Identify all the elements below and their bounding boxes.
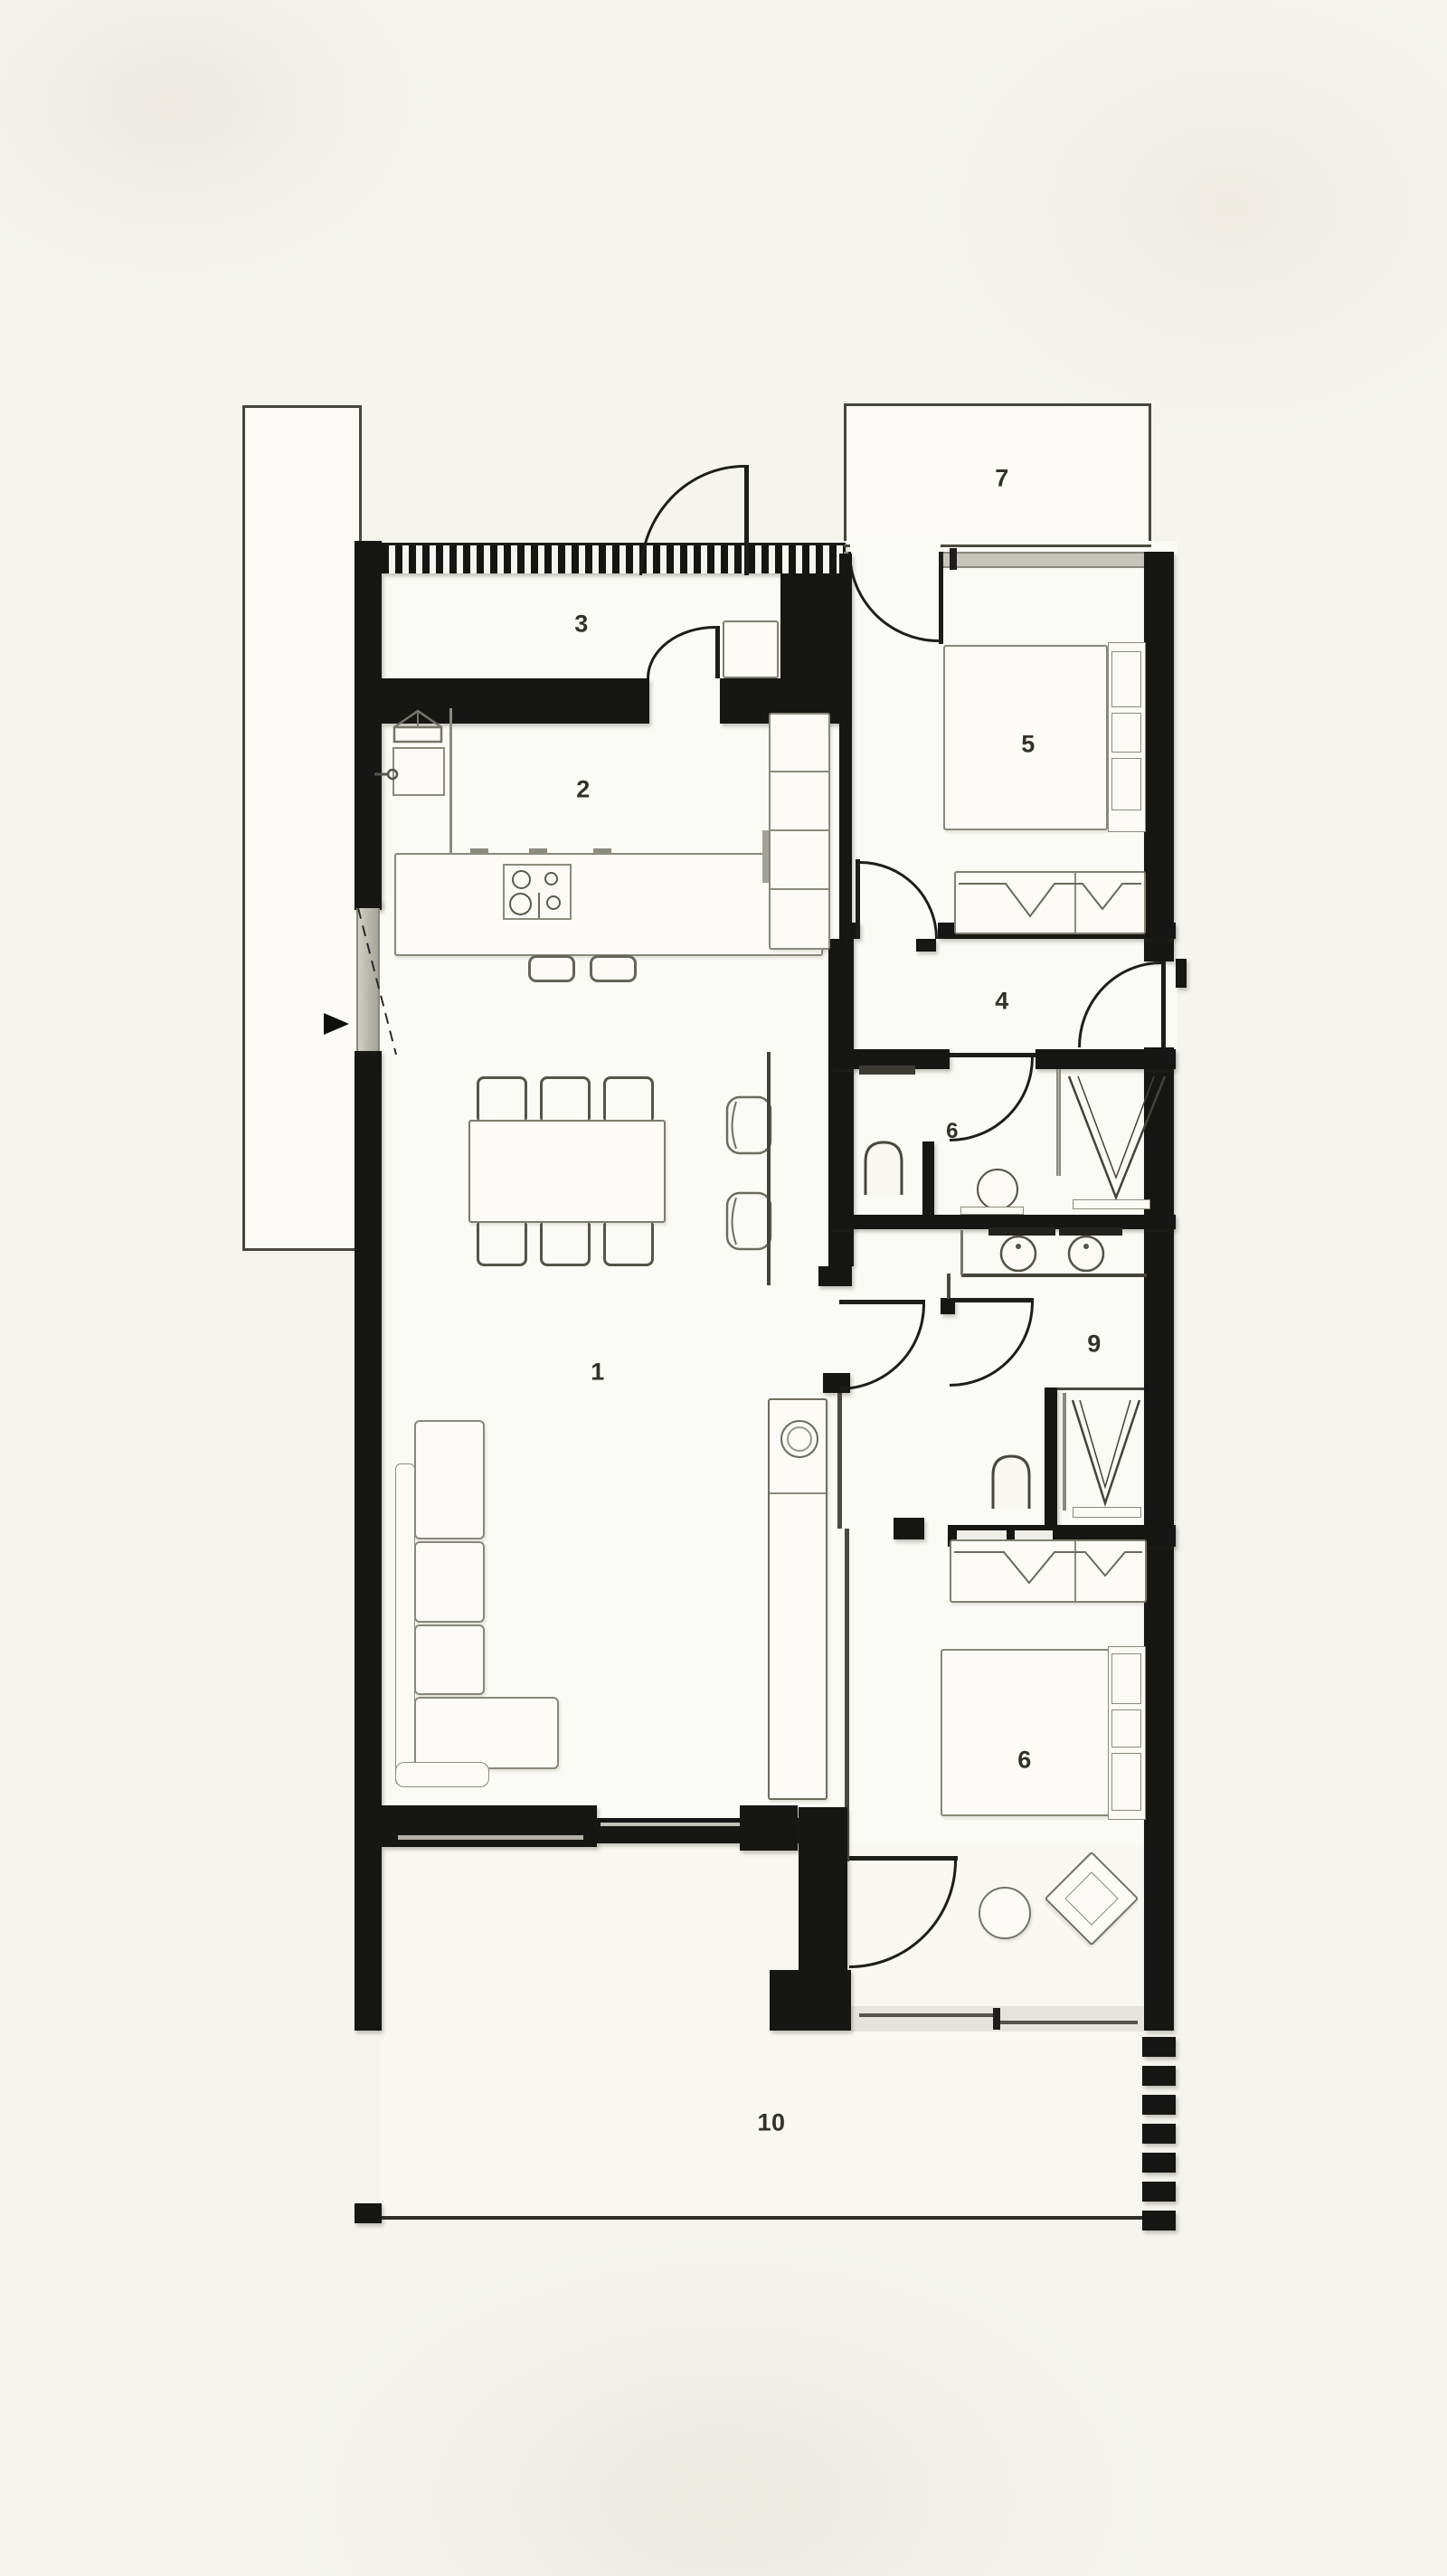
dining-chair [477,1076,527,1120]
shower-glass-door [1063,1393,1066,1511]
wall-bath-top [1036,1049,1176,1069]
washbasin-icon [977,1169,1018,1210]
dining-chair [540,1076,591,1120]
window-mullion [993,2008,1000,2030]
pillow [1111,713,1141,753]
terrace-fence-dash [1142,2153,1176,2173]
tall-cabinet-column [769,713,830,950]
room-label-entry: 3 [574,611,589,639]
entrance-door-leaf [1161,961,1166,1047]
island-handle [593,848,611,855]
faucet-icon [374,765,400,783]
room-label-balcony: 7 [995,465,1009,493]
entry-arrow-icon [322,1011,351,1037]
wall-corridor-thin [837,1393,842,1529]
dish-rack-icon [391,707,445,745]
front-door-leaf [744,465,749,575]
laundry-unit [768,1398,828,1800]
dining-chair [477,1223,527,1266]
door-stop [916,939,936,952]
entry-closet [723,620,779,678]
wall-left-main [355,1062,382,2031]
sink-icon [998,1233,1039,1274]
balcony-left [242,405,362,1251]
dining-chair [540,1223,591,1266]
bath-partition [1045,1387,1057,1539]
vanity-counter [961,1274,1147,1277]
cooktop-divider [538,893,540,918]
terrace-floor [380,1845,1147,2220]
wall-bedroom-left [839,554,852,923]
sofa-seat [414,1541,485,1623]
island-handle [529,848,547,855]
cabinet-divider [771,771,828,772]
room-label-terrace: 10 [757,2109,785,2137]
sink-icon [1065,1233,1107,1274]
pillow [1111,758,1141,810]
burner-icon [544,872,558,885]
island-handle [470,848,488,855]
terrace-fence-dash [1142,2182,1176,2202]
pouf [979,1887,1031,1939]
shower-icon [1069,1397,1143,1511]
pillow [1111,1653,1141,1704]
wall-cap [818,1266,852,1286]
wall-stub [770,1970,851,2031]
basin-counter [960,1207,1024,1215]
sofa-seat [414,1420,485,1539]
shower-icon [1065,1073,1170,1205]
window-cap [355,1051,382,1062]
bar-stool [590,955,637,982]
wall-stub [799,1807,847,1975]
pillow [1111,1709,1141,1747]
balcony-door-leaf [939,552,943,644]
dining-chair [603,1223,654,1266]
dining-chair [603,1076,654,1120]
hanging-clothes-icon [951,1541,1145,1601]
entrance-hook [1176,959,1187,988]
room-label-kitchen: 2 [576,776,591,804]
sofa-armrest [395,1762,489,1787]
toilet-icon [861,1136,906,1198]
front-door-arc [639,465,744,575]
shower-tray [1073,1199,1150,1209]
sliding-pane [1000,2021,1138,2024]
burner-icon [509,893,532,915]
cabinet-divider [771,888,828,890]
burner-icon [546,895,561,910]
shower-top-line [1045,1387,1144,1390]
wall-end [894,1518,924,1539]
wall-left-top [355,541,382,906]
hanging-clothes-icon [956,873,1144,933]
terrace-fence-dash [1142,2095,1176,2115]
sliding-pane [859,2013,995,2017]
terrace-post [355,2203,382,2223]
wall-living-bottom [382,1805,597,1847]
burner-icon [512,870,531,889]
window-mullion [950,548,957,570]
unit-divider [770,1492,826,1494]
pillow [1111,1753,1141,1811]
bar-stool [528,955,575,982]
shower-tray [1073,1507,1141,1518]
wall-corner [740,1805,798,1851]
sofa-backrest [395,1463,415,1785]
terrace-fence-dash [1142,2211,1176,2230]
entry-door-leaf [715,626,720,678]
cabinet-divider [771,829,828,831]
terrace-fence-dash [1142,2124,1176,2144]
room-label-bathroom-small: 6 [946,1119,959,1144]
wall-thin [947,1274,950,1299]
terrace-fence-dash [1142,2066,1176,2086]
sliding-pane [398,1835,583,1840]
kitchen-island [394,853,823,956]
vanity-edge [960,1230,963,1275]
bed [941,1649,1110,1816]
room-label-bedroom-second: 6 [1017,1747,1032,1775]
terrace-edge [365,2216,1145,2220]
cabinet-handle [762,830,769,883]
terrace-fence-dash [1142,2037,1176,2057]
cooktop-icon [503,864,572,920]
room-label-hallway: 4 [995,988,1009,1016]
wall-right-top [1144,552,1174,961]
kitchen-sink-basin [392,747,445,796]
washing-machine-drum [787,1426,812,1452]
partition-line [767,1052,771,1285]
room-label-living: 1 [591,1359,605,1387]
counter-edge [449,708,452,853]
entry-louver-wall [382,543,846,573]
floor-plan: 1 2 3 4 5 6 7 9 6 10 [0,0,1447,2576]
sofa-seat [414,1624,485,1695]
toilet-icon [988,1450,1034,1511]
room-label-bedroom-main: 5 [1021,731,1036,759]
dining-table [468,1120,666,1223]
sofa-chaise [414,1697,559,1769]
shelf [859,1065,915,1075]
shower-glass-door [1056,1069,1061,1176]
bath-partition [922,1141,934,1217]
pillow [1111,651,1141,707]
room-label-bathroom-main: 9 [1087,1331,1102,1359]
